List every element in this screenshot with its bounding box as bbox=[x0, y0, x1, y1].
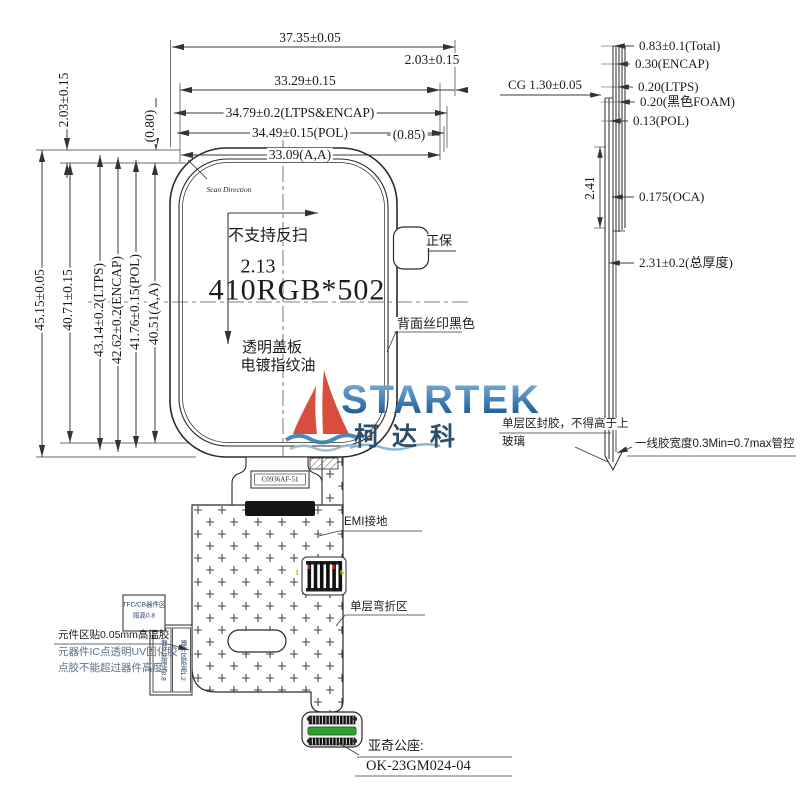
dim-080: (0.80) bbox=[143, 108, 157, 145]
stack-foam: 0.20(黑色FOAM) bbox=[638, 95, 737, 109]
brand-logo-cn: 柯达科 bbox=[354, 417, 468, 453]
stack-total-thickness: 2.31±0.2(总厚度) bbox=[637, 256, 735, 270]
dim-ltps-encap-width: 34.79±0.2(LTPS&ENCAP) bbox=[224, 106, 377, 120]
fpc-note-2: 元器件IC点透明UV固化胶 bbox=[56, 647, 180, 658]
dim-right-gap: 2.03±0.15 bbox=[403, 53, 462, 67]
front-side-label: 正保 bbox=[424, 234, 454, 248]
dim-085: (0.85) bbox=[391, 128, 428, 142]
stack-encap: 0.30(ENCAP) bbox=[633, 57, 711, 71]
dim-aa-width: 33.09(A,A) bbox=[267, 148, 333, 162]
cover-plate-label: 透明盖板 bbox=[240, 340, 304, 356]
connector-part-number: OK-23GM024-04 bbox=[364, 759, 473, 774]
cg-thickness-label: CG 1.30±0.05 bbox=[506, 78, 584, 92]
resolution-label: 410RGB*502 bbox=[207, 274, 388, 306]
component-box1-line2: 限高0.8 bbox=[131, 614, 157, 621]
line-glue-note: 一线胶宽度0.3Min=0.7max管控 bbox=[633, 438, 796, 450]
dim-cg-width: 33.29±0.15 bbox=[272, 74, 337, 88]
component-box1-line1: TFC/CB器件区 bbox=[121, 603, 168, 610]
dim-height-2: 40.71±0.15 bbox=[61, 267, 75, 332]
bend-zone-label: 单层弯折区 bbox=[348, 601, 410, 613]
ic-part-number: C0936AF-51 bbox=[260, 476, 301, 483]
glue-note-line1: 单层区封胶，不得高于上 bbox=[500, 418, 631, 430]
stack-total: 0.83±0.1(Total) bbox=[637, 39, 722, 53]
stack-pol: 0.13(POL) bbox=[631, 114, 691, 128]
dim-pol-height: 41.76±0.15(POL) bbox=[128, 252, 142, 352]
stack-oca: 0.175(OCA) bbox=[637, 190, 706, 204]
back-print-label: 背面丝印黑色 bbox=[395, 317, 477, 331]
dim-ltps-height: 43.14±0.2(LTPS) bbox=[92, 261, 106, 359]
dim-top-gap: 2.03±0.15 bbox=[57, 71, 71, 130]
pin-number-6: 6 bbox=[338, 569, 346, 577]
connector-name-label: 亚奇公座: bbox=[366, 739, 426, 753]
scan-direction-label: Scan Direction bbox=[205, 186, 254, 194]
dim-aa-height: 40.51(A,A) bbox=[147, 281, 161, 347]
dim-241: 2.41 bbox=[583, 174, 597, 202]
fpc-note-1: 元件区贴0.05mm高温胶 bbox=[56, 630, 171, 641]
engineering-drawing-page: STARTEK 柯达科 37.35±0.05 33.29±0.15 2.03±0… bbox=[0, 0, 800, 800]
dim-total-height: 45.15±0.05 bbox=[33, 267, 47, 332]
glue-note-line2: 玻璃 bbox=[500, 436, 527, 448]
emi-ground-label: EMI接地 bbox=[342, 516, 389, 528]
stack-ltps: 0.20(LTPS) bbox=[636, 80, 701, 94]
fpc-note-3: 点胶不能超过器件高度 bbox=[56, 663, 165, 674]
pin-number-1: 1 bbox=[293, 569, 301, 577]
dim-encap-height: 42.62±0.2(ENCAP) bbox=[110, 254, 124, 366]
no-reverse-scan-label: 不支持反扫 bbox=[226, 229, 310, 246]
dim-pol-width: 34.49±0.15(POL) bbox=[250, 126, 350, 140]
fingerprint-coating-label: 电镀指纹油 bbox=[238, 358, 317, 374]
dim-total-width: 37.35±0.05 bbox=[277, 31, 342, 45]
